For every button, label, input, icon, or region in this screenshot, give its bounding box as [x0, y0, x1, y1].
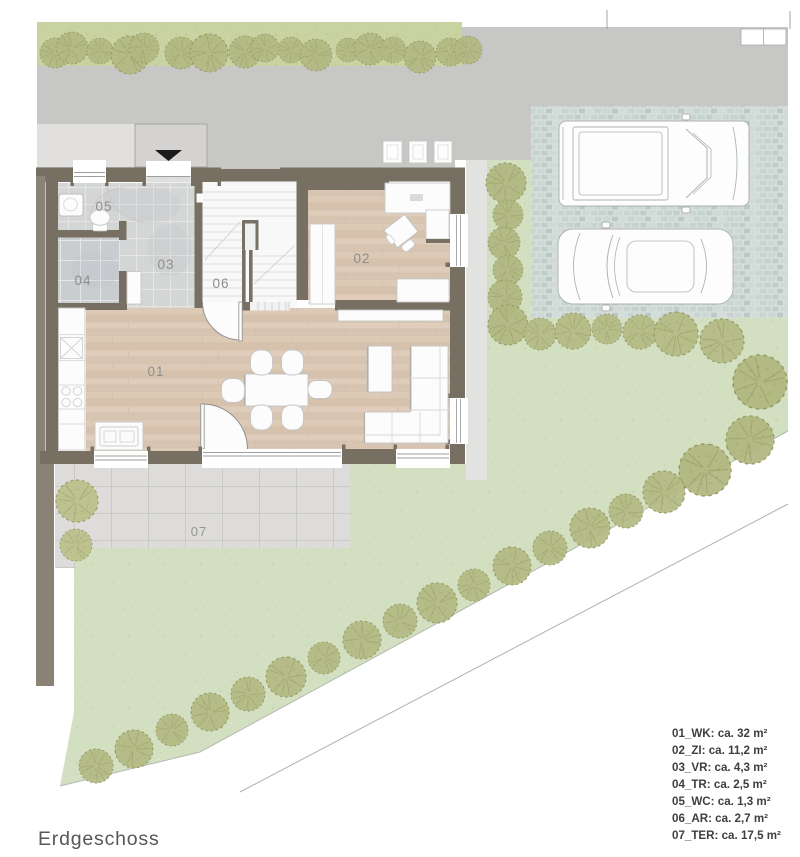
svg-text:07_TER: ca. 17,5 m²: 07_TER: ca. 17,5 m² — [672, 829, 781, 842]
svg-text:05_WC: ca. 1,3 m²: 05_WC: ca. 1,3 m² — [672, 795, 771, 808]
svg-text:06: 06 — [212, 276, 229, 291]
svg-text:01: 01 — [147, 364, 164, 379]
svg-text:Erdgeschoss: Erdgeschoss — [38, 828, 160, 850]
svg-text:03_VR: ca. 4,3 m²: 03_VR: ca. 4,3 m² — [672, 761, 768, 774]
svg-text:06_AR: ca. 2,7 m²: 06_AR: ca. 2,7 m² — [672, 812, 768, 825]
svg-text:05: 05 — [95, 199, 112, 214]
svg-text:01_WK: ca. 32 m²: 01_WK: ca. 32 m² — [672, 727, 768, 740]
svg-text:03: 03 — [157, 257, 174, 272]
svg-text:07: 07 — [191, 524, 207, 539]
svg-text:02: 02 — [353, 251, 370, 266]
svg-text:04: 04 — [74, 273, 91, 288]
svg-text:02_ZI: ca. 11,2 m²: 02_ZI: ca. 11,2 m² — [672, 744, 768, 757]
svg-text:04_TR: ca. 2,5 m²: 04_TR: ca. 2,5 m² — [672, 778, 767, 791]
